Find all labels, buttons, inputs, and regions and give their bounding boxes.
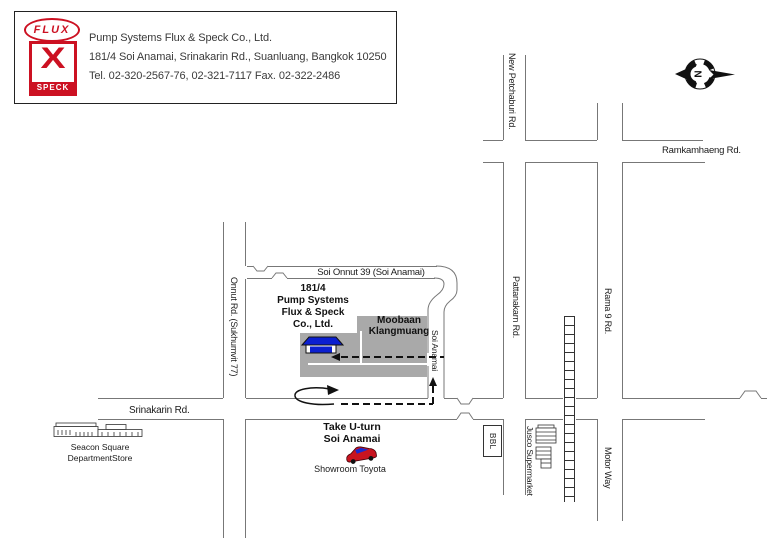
seacon-building-icon	[50, 420, 150, 444]
estate-lane-line	[360, 331, 362, 364]
uturn-line1: Take U-turn	[323, 421, 381, 433]
jusco-building-icon	[533, 423, 563, 473]
toyota-car-icon	[342, 444, 382, 466]
route-dash-soi-anamai	[432, 386, 434, 404]
bridge-notch	[253, 266, 268, 271]
map-canvas: FLUX X SPECK Pump Systems Flux & Speck C…	[0, 0, 780, 546]
route-arrow-north	[429, 377, 437, 386]
road-label-pattanakarn: Pattanakarn Rd.	[511, 276, 521, 338]
road-label-ramkamhaeng: Ramkamhaeng Rd.	[662, 145, 741, 156]
bridge-notch	[740, 391, 761, 398]
company-block-line3: Flux & Speck	[277, 307, 349, 319]
road-label-onnut: Onnut Rd. (Sukhumvit 77)	[229, 277, 239, 376]
route-arrow-west	[331, 353, 340, 361]
road-label-rama9: Rama 9 Rd.	[603, 288, 613, 334]
uturn-arrowhead	[327, 385, 339, 395]
seacon-label: Seacon Square DepartmentStore	[68, 442, 133, 464]
uturn-label: Take U-turn Soi Anamai	[323, 421, 381, 445]
bbl-label: BBL	[488, 433, 497, 450]
railway-track	[564, 316, 575, 502]
bridge-notch	[272, 273, 287, 278]
soi-lane-line	[308, 363, 427, 365]
moobaan-label: Moobaan Klangmuang	[369, 315, 430, 337]
road-label-soi-anamai: Soi Anamai	[430, 330, 440, 371]
bridge-notch	[457, 413, 473, 419]
moobaan-line1: Moobaan	[369, 315, 430, 326]
moobaan-line2: Klangmuang	[369, 326, 430, 337]
road-label-srinakarin: Srinakarin Rd.	[129, 405, 190, 416]
road-label-soi-onnut39: Soi Onnut 39 (Soi Anamai)	[317, 267, 424, 278]
road-label-motor-way: Motor Way	[603, 447, 613, 488]
road-label-new-petchaburi: New Petchaburi Rd.	[507, 53, 517, 129]
route-dash-soi	[341, 356, 444, 358]
bbl-bank-box: BBL	[483, 425, 502, 457]
route-dash-srinakarin	[341, 403, 433, 405]
company-block-line4: Co., Ltd.	[277, 319, 349, 331]
seacon-line2: DepartmentStore	[68, 453, 133, 464]
company-block-label: 181/4 Pump Systems Flux & Speck Co., Ltd…	[277, 283, 349, 331]
company-block-line2: Pump Systems	[277, 295, 349, 307]
company-block-line1: 181/4	[277, 283, 349, 295]
bridge-notch	[457, 398, 473, 404]
